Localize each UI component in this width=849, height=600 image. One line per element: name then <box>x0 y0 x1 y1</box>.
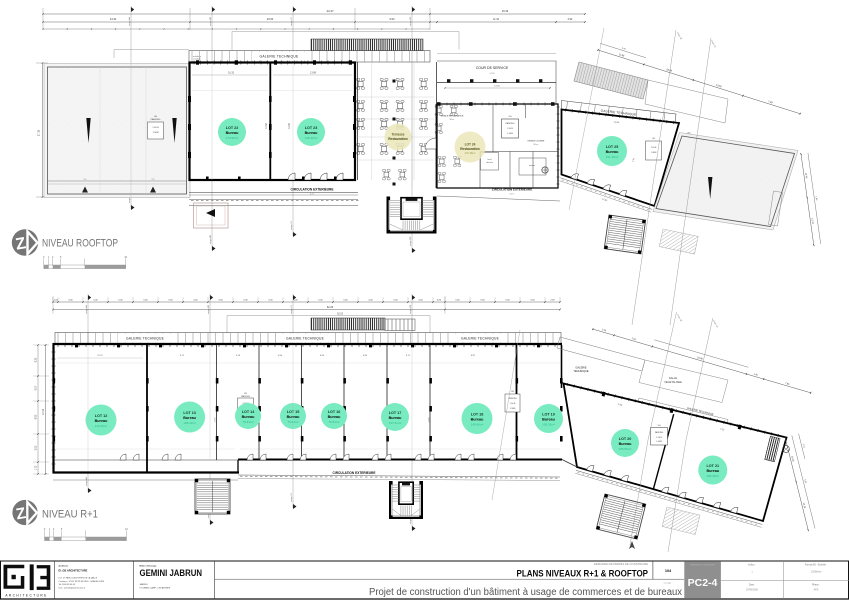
svg-text:75.81m²: 75.81m² <box>242 420 253 424</box>
svg-text:PARKING: PARKING <box>241 395 250 398</box>
svg-text:coupe CC: coupe CC <box>291 220 293 230</box>
svg-text:coupe BB: coupe BB <box>210 16 212 26</box>
svg-text:coupe CC: coupe CC <box>291 492 293 502</box>
svg-text:LOT 21: LOT 21 <box>707 464 720 468</box>
svg-text:LOT 12: LOT 12 <box>95 414 108 418</box>
svg-text:1.00M: 1.00M <box>507 133 513 135</box>
svg-text:62.23: 62.23 <box>327 306 334 309</box>
svg-text:110.26m²: 110.26m² <box>95 424 107 428</box>
svg-text:148.12m²: 148.12m² <box>183 421 196 425</box>
svg-text:crinoline: crinoline <box>193 59 201 61</box>
svg-text:5 m²: 5 m² <box>310 193 314 196</box>
svg-text:Bureau: Bureau <box>706 469 719 473</box>
svg-text:PERMIS DE CONSTRUIRE: PERMIS DE CONSTRUIRE <box>690 565 715 567</box>
svg-text:local: local <box>488 159 492 161</box>
svg-text:coupe DD: coupe DD <box>410 236 412 246</box>
svg-text:ARCHITECTURE: ARCHITECTURE <box>5 593 47 597</box>
svg-text:1.30M: 1.30M <box>152 132 158 134</box>
svg-text:1.00M: 1.00M <box>656 441 662 443</box>
svg-text:97 GRAND CAMP - LES ABYMES: 97 GRAND CAMP - LES ABYMES <box>140 586 171 589</box>
svg-text:14.89: 14.89 <box>428 417 430 423</box>
svg-text:TECHNIQUE: TECHNIQUE <box>573 369 589 373</box>
svg-text:Bureau: Bureau <box>287 415 300 419</box>
svg-text:LOT 27 PARC D'ACTIVITES DE LA: LOT 27 PARC D'ACTIVITES DE LA JAILLE <box>59 577 98 580</box>
svg-text:44.37: 44.37 <box>327 9 334 13</box>
svg-text:Terrasse: Terrasse <box>391 133 404 137</box>
svg-text:16.33: 16.33 <box>228 72 235 75</box>
svg-text:coupe AA: coupe AA <box>85 304 88 314</box>
svg-text:1.90 B: 1.90 B <box>507 128 513 130</box>
svg-text:VH: VH <box>154 116 157 118</box>
svg-text:147.41m²: 147.41m² <box>389 421 402 425</box>
svg-text:coupe CC: coupe CC <box>291 304 293 314</box>
svg-text:20.64: 20.64 <box>267 17 274 21</box>
svg-text:1.30M: 1.30M <box>651 152 657 154</box>
svg-text:Bureau: Bureau <box>471 418 484 422</box>
svg-text:GALERIE TECHNIQUE: GALERIE TECHNIQUE <box>461 337 500 341</box>
svg-text:LOT 17: LOT 17 <box>389 411 402 415</box>
svg-text:coupe DD: coupe DD <box>410 304 412 314</box>
svg-text:5.50: 5.50 <box>36 445 38 450</box>
svg-text:14.84: 14.84 <box>265 122 268 129</box>
svg-text:Restauration: Restauration <box>388 137 408 141</box>
svg-text:1.50 B: 1.50 B <box>656 437 662 439</box>
svg-text:17.10: 17.10 <box>42 408 45 415</box>
svg-text:GALERIE TECHNIQUE: GALERIE TECHNIQUE <box>286 337 325 341</box>
svg-text:VEGETALISEE: VEGETALISEE <box>664 380 682 384</box>
svg-text:151.18m²: 151.18m² <box>606 155 619 159</box>
svg-text:coupe AA: coupe AA <box>128 16 131 26</box>
svg-text:LOT 13: LOT 13 <box>183 411 196 415</box>
svg-text:Indice :: Indice : <box>748 564 756 567</box>
svg-text:GALERIE: GALERIE <box>575 366 587 370</box>
svg-text:coupe BB: coupe BB <box>208 304 210 314</box>
svg-text:17.10: 17.10 <box>37 129 41 136</box>
svg-text:LOT 24: LOT 24 <box>465 143 476 147</box>
svg-text:mail : archi@gibarchitecture.f: mail : archi@gibarchitecture.fr <box>59 586 86 589</box>
svg-text:Date :: Date : <box>749 584 756 587</box>
svg-text:62.03: 62.03 <box>337 314 343 316</box>
svg-text:COUR DE SERVICE: COUR DE SERVICE <box>476 66 509 70</box>
svg-text:coupe DD: coupe DD <box>410 16 412 26</box>
svg-text:Carrefour - 97122 PETIT-BOURG: Carrefour - 97122 PETIT-BOURG - GUADELOU… <box>59 580 105 583</box>
svg-text:182.45m²: 182.45m² <box>706 474 719 478</box>
svg-text:6.50: 6.50 <box>36 414 38 419</box>
svg-text:11.37: 11.37 <box>97 355 103 357</box>
svg-text:LOT 23: LOT 23 <box>305 126 318 130</box>
svg-text:DEMANDE DE PERMIS DE CONSTRUIR: DEMANDE DE PERMIS DE CONSTRUIRE <box>594 562 648 566</box>
svg-text:Projet de construction d'un bâ: Projet de construction d'un bâtiment à u… <box>369 587 682 598</box>
svg-text:LOT 20: LOT 20 <box>619 437 632 441</box>
svg-text:2%: 2% <box>84 179 87 181</box>
svg-text:LOT 25: LOT 25 <box>606 145 619 149</box>
svg-text:coupe AA: coupe AA <box>85 476 88 486</box>
svg-text:PLANS NIVEAUX R+1 & ROOFTOP: PLANS NIVEAUX R+1 & ROOFTOP <box>517 568 649 578</box>
svg-text:Bureau: Bureau <box>542 418 555 422</box>
svg-text:CIRCULATION EXTERIEURE: CIRCULATION EXTERIEURE <box>492 188 532 192</box>
svg-text:14.30: 14.30 <box>494 86 500 88</box>
svg-text:1.90 B: 1.90 B <box>651 147 657 149</box>
svg-text:EI. GB ARCHITECTURE: EI. GB ARCHITECTURE <box>59 569 88 573</box>
svg-text:dechets: dechets <box>486 161 493 164</box>
svg-text:Bureau: Bureau <box>242 415 255 419</box>
svg-text:170.90m²: 170.90m² <box>226 136 239 140</box>
svg-text:14.92: 14.92 <box>288 122 291 129</box>
svg-text:Ouvrage :: Ouvrage : <box>664 583 673 585</box>
svg-text:13.88: 13.88 <box>310 72 317 75</box>
svg-text:LOT 19: LOT 19 <box>542 413 555 417</box>
svg-text:11.44: 11.44 <box>493 18 499 21</box>
svg-text:07/09/2020: 07/09/2020 <box>746 589 759 592</box>
svg-text:Format A0 - Echelle :: Format A0 - Echelle : <box>805 564 828 567</box>
svg-text:96 m²: 96 m² <box>534 143 539 146</box>
svg-text:NIVEAU ROOFTOP: NIVEAU ROOFTOP <box>42 238 118 250</box>
svg-text:44.86: 44.86 <box>489 73 495 75</box>
svg-text:Bureau: Bureau <box>389 416 402 420</box>
svg-text:5.07: 5.07 <box>36 385 38 390</box>
svg-text:ESPACE CUISINE: ESPACE CUISINE <box>528 140 545 143</box>
svg-text:Bureau: Bureau <box>305 131 318 135</box>
svg-text:PC2-4: PC2-4 <box>688 577 718 589</box>
svg-text:LOT 22: LOT 22 <box>226 126 239 130</box>
svg-text:NIVEAU R+1: NIVEAU R+1 <box>42 509 98 521</box>
svg-text:105.50m²: 105.50m² <box>619 447 632 451</box>
svg-text:Tel: 0590 48 06 44: Tel: 0590 48 06 44 <box>59 584 76 586</box>
svg-text:reserve: reserve <box>529 164 535 167</box>
svg-text:JABRUN: JABRUN <box>140 583 149 586</box>
svg-text:148.40m²: 148.40m² <box>305 136 318 140</box>
svg-text:1.90 B: 1.90 B <box>510 403 516 405</box>
svg-text:Bureau: Bureau <box>619 442 632 446</box>
svg-text:9.5m²: 9.5m² <box>510 193 515 196</box>
svg-text:GALERIE TECHNIQUE: GALERIE TECHNIQUE <box>126 337 165 341</box>
svg-text:104: 104 <box>665 569 672 573</box>
svg-text:DALLE: DALLE <box>669 376 677 380</box>
svg-text:LOT 14: LOT 14 <box>242 410 255 414</box>
svg-text:14.40: 14.40 <box>110 17 117 21</box>
svg-text:1.73: 1.73 <box>36 465 38 470</box>
svg-text:LOT 18: LOT 18 <box>471 413 484 417</box>
svg-text:APS: APS <box>814 589 819 592</box>
svg-text:147.28m²: 147.28m² <box>465 151 476 155</box>
svg-text:PARKING: PARKING <box>655 431 664 434</box>
svg-text:GEMINI JABRUN: GEMINI JABRUN <box>140 567 203 578</box>
svg-text:PARKING: PARKING <box>151 118 161 121</box>
svg-text:1/200ème: 1/200ème <box>811 571 822 574</box>
svg-text:14.89: 14.89 <box>214 417 216 423</box>
svg-text:coupe CC: coupe CC <box>291 16 293 26</box>
svg-text:PARKING: PARKING <box>506 122 515 125</box>
svg-text:PARKING: PARKING <box>508 397 517 400</box>
svg-text:149.86m²: 149.86m² <box>471 423 484 427</box>
svg-text:2%: 2% <box>152 179 155 181</box>
svg-text:LOT 16: LOT 16 <box>328 410 341 414</box>
svg-text:Bureau: Bureau <box>183 416 196 420</box>
svg-text:Restauration: Restauration <box>460 147 480 151</box>
svg-text:75.81m²: 75.81m² <box>328 420 339 424</box>
svg-text:Phase :: Phase : <box>812 584 820 587</box>
svg-text:6.20: 6.20 <box>36 357 38 362</box>
svg-text:GALERIE TECHNIQUE: GALERIE TECHNIQUE <box>260 55 299 59</box>
svg-text:ESPACE RESTAURATION: ESPACE RESTAURATION <box>441 115 464 118</box>
svg-text:2.92: 2.92 <box>568 18 573 21</box>
svg-text:Bureau: Bureau <box>95 419 108 423</box>
svg-text:1.90 B: 1.90 B <box>152 127 159 129</box>
svg-text:Bureau: Bureau <box>226 131 239 135</box>
svg-text:CIRCULATION EXTERIEURE: CIRCULATION EXTERIEURE <box>333 471 376 475</box>
svg-text:9.62: 9.62 <box>389 17 395 21</box>
svg-text:15.46: 15.46 <box>502 9 509 13</box>
svg-text:CIRCULATION EXTERIEURE: CIRCULATION EXTERIEURE <box>291 188 334 192</box>
svg-text:coupe BB: coupe BB <box>210 234 212 244</box>
svg-text:1.30M: 1.30M <box>510 408 516 410</box>
svg-text:Bureau: Bureau <box>606 150 619 154</box>
svg-text:Bureau: Bureau <box>328 415 341 419</box>
svg-text:86 m²: 86 m² <box>450 118 455 121</box>
svg-text:105.30m²: 105.30m² <box>542 423 555 427</box>
svg-text:Architecte: Architecte <box>59 565 70 568</box>
